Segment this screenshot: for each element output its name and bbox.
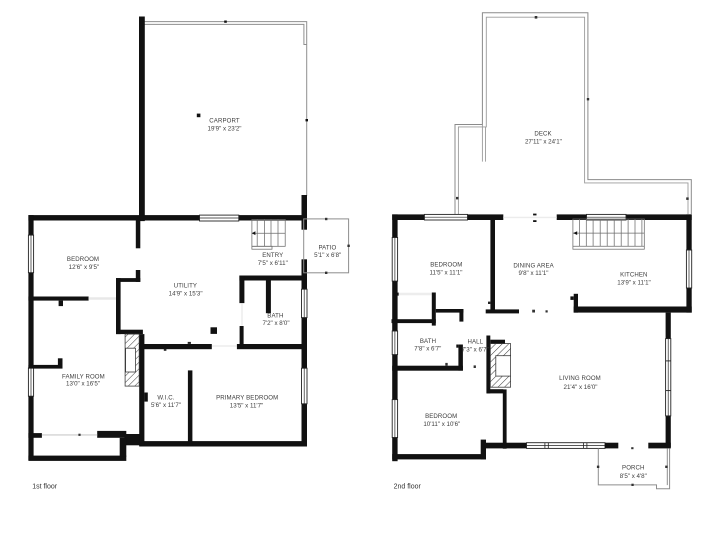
svg-text:5'1" x 6'8": 5'1" x 6'8" [314,252,341,259]
svg-text:BATH: BATH [267,313,283,320]
svg-text:PORCH: PORCH [622,464,645,471]
svg-text:21'4" x 16'0": 21'4" x 16'0" [564,384,598,391]
svg-text:BEDROOM: BEDROOM [425,413,457,420]
svg-text:7'2" x 8'0": 7'2" x 8'0" [262,320,289,327]
svg-text:FAMILY ROOM: FAMILY ROOM [62,373,105,380]
svg-text:12'6" x 9'5": 12'6" x 9'5" [69,264,100,271]
svg-text:7'3" x 6'7": 7'3" x 6'7" [462,347,489,354]
svg-text:9'8" x 11'1": 9'8" x 11'1" [518,270,548,277]
svg-text:PATIO: PATIO [318,244,336,251]
svg-text:7'5" x 6'11": 7'5" x 6'11" [258,260,288,267]
svg-text:PRIMARY BEDROOM: PRIMARY BEDROOM [216,395,278,402]
svg-text:8'5" x 4'8": 8'5" x 4'8" [620,473,647,480]
svg-text:10'11" x 10'6": 10'11" x 10'6" [423,421,460,428]
svg-text:BATH: BATH [420,338,436,345]
svg-text:ENTRY: ENTRY [262,252,283,259]
svg-text:7'8" x 6'7": 7'8" x 6'7" [414,346,441,353]
svg-text:CARPORT: CARPORT [209,118,240,125]
svg-text:BEDROOM: BEDROOM [67,256,99,263]
svg-text:19'9" x 23'2": 19'9" x 23'2" [208,126,242,133]
svg-text:DECK: DECK [534,130,551,137]
svg-text:LIVING ROOM: LIVING ROOM [559,375,601,382]
svg-text:27'11" x 24'1": 27'11" x 24'1" [525,138,562,145]
svg-text:DINING AREA: DINING AREA [513,263,554,270]
svg-text:HALL: HALL [467,339,483,346]
svg-text:13'0" x 16'5": 13'0" x 16'5" [66,381,100,388]
svg-text:1st floor: 1st floor [32,483,58,490]
svg-text:BEDROOM: BEDROOM [430,261,462,268]
svg-text:KITCHEN: KITCHEN [620,271,647,278]
svg-text:14'9" x 15'3": 14'9" x 15'3" [169,291,203,298]
svg-text:2nd floor: 2nd floor [394,483,422,490]
svg-text:UTILITY: UTILITY [174,283,197,290]
svg-text:11'5" x 11'1": 11'5" x 11'1" [429,270,462,277]
svg-text:13'9" x 11'1": 13'9" x 11'1" [617,279,650,286]
svg-text:13'5" x 11'7": 13'5" x 11'7" [230,403,263,410]
svg-text:W.I.C.: W.I.C. [157,394,174,401]
svg-text:5'6" x 11'7": 5'6" x 11'7" [151,402,181,409]
